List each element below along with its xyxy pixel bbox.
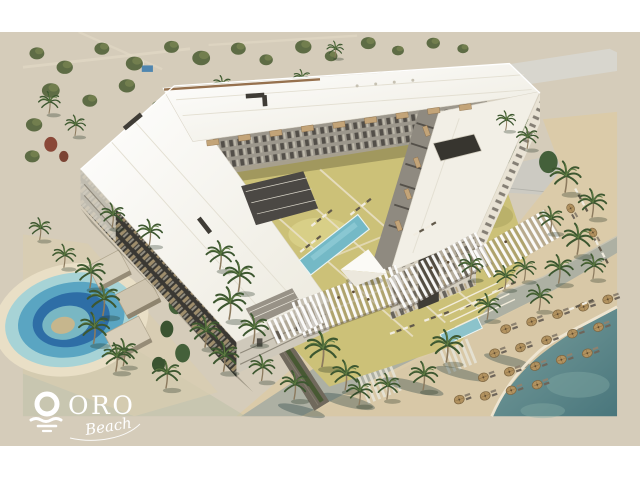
page: ORO Beach [0,0,640,480]
aerial-render-image: ORO Beach [0,32,640,446]
bottom-white-band [0,446,640,480]
oro-beach-logo: ORO Beach [24,384,174,446]
sun-over-sea-waves-icon [31,394,61,431]
top-white-band [0,0,640,32]
